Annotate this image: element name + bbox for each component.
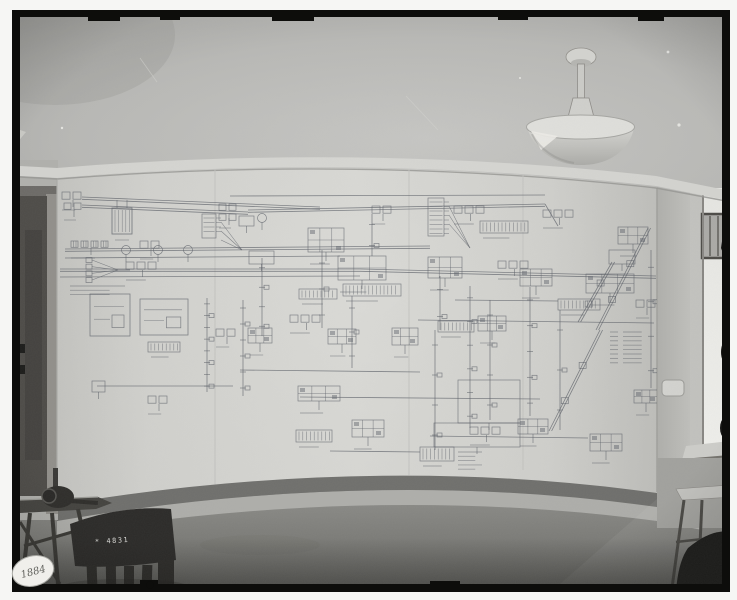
photo-canvas: * 4831 1884 <box>0 0 737 600</box>
photograph: * 4831 1884 <box>0 0 737 600</box>
photo-image: * 4831 <box>0 0 737 593</box>
film-grain <box>20 17 722 584</box>
